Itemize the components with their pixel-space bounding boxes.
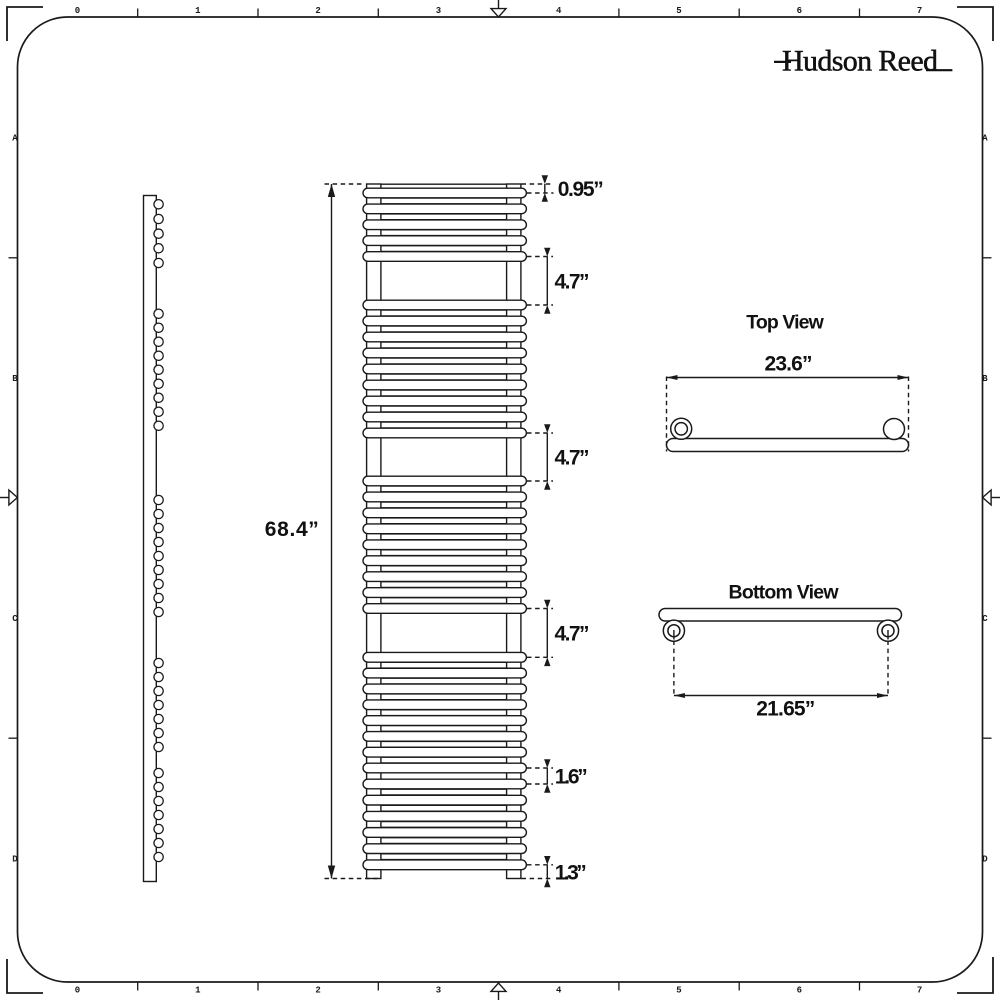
svg-text:A: A xyxy=(982,134,988,144)
svg-text:1.3”: 1.3” xyxy=(555,861,587,884)
svg-text:68.4”: 68.4” xyxy=(265,518,319,541)
svg-text:3: 3 xyxy=(436,986,441,996)
svg-text:2: 2 xyxy=(315,6,320,16)
svg-text:Hudson Reed: Hudson Reed xyxy=(782,45,938,78)
svg-text:6: 6 xyxy=(797,6,802,16)
svg-text:23.6”: 23.6” xyxy=(765,353,813,376)
svg-text:4.7”: 4.7” xyxy=(555,623,590,646)
svg-text:7: 7 xyxy=(917,986,922,996)
svg-text:4: 4 xyxy=(556,986,562,996)
svg-text:4: 4 xyxy=(556,6,562,16)
svg-text:5: 5 xyxy=(676,986,681,996)
svg-text:0: 0 xyxy=(75,6,80,16)
svg-text:0: 0 xyxy=(75,986,80,996)
svg-text:0.95”: 0.95” xyxy=(558,178,604,201)
svg-text:C: C xyxy=(12,614,18,624)
svg-text:2: 2 xyxy=(315,986,320,996)
svg-text:3: 3 xyxy=(436,6,441,16)
svg-text:7: 7 xyxy=(917,6,922,16)
svg-text:4.7”: 4.7” xyxy=(555,447,590,470)
svg-text:B: B xyxy=(12,374,18,384)
svg-text:Top View: Top View xyxy=(746,312,824,334)
svg-text:6: 6 xyxy=(797,986,802,996)
svg-text:5: 5 xyxy=(676,6,681,16)
svg-text:A: A xyxy=(12,134,18,144)
svg-text:21.65”: 21.65” xyxy=(756,698,815,721)
svg-text:D: D xyxy=(982,854,988,864)
svg-text:1: 1 xyxy=(195,6,201,16)
svg-text:D: D xyxy=(12,854,18,864)
svg-text:B: B xyxy=(982,374,988,384)
svg-text:1: 1 xyxy=(195,986,201,996)
svg-text:4.7”: 4.7” xyxy=(555,270,590,293)
svg-text:Bottom View: Bottom View xyxy=(729,581,840,603)
svg-text:C: C xyxy=(982,614,988,624)
svg-text:1.6”: 1.6” xyxy=(555,766,588,789)
